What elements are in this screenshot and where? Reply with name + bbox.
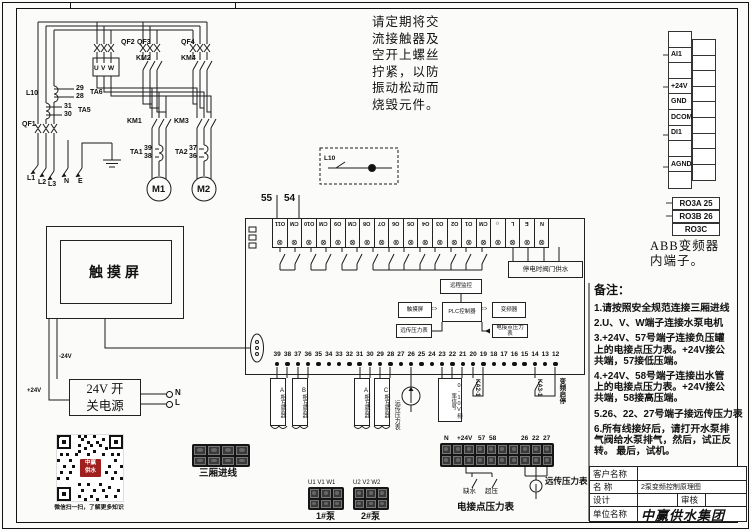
psu-n-terminal xyxy=(166,391,173,398)
terminal-cell: 34 xyxy=(324,351,334,366)
schematic-sheet: { "note": { "text": "请定期将交\n流接触器及\n空开上螺丝… xyxy=(0,0,751,531)
inverter-w: W xyxy=(108,66,114,73)
psu-l-terminal xyxy=(166,401,173,408)
ta2-num37: 37 xyxy=(189,145,197,152)
ta6-num28: 28 xyxy=(76,93,84,100)
relay-ka3-label: KA3-1 xyxy=(536,379,542,396)
screw-icon: ⊗ xyxy=(320,239,327,246)
qf3-label: QF3 xyxy=(137,39,151,46)
terminal-number: 39 xyxy=(274,351,281,358)
motor1-label: M1 xyxy=(152,185,165,195)
terminal-label: O6 xyxy=(392,220,399,226)
pump2-terminal-block xyxy=(353,487,389,510)
terminal-dot-icon xyxy=(492,362,496,366)
terminal-cell: 30 xyxy=(365,351,375,366)
terminal-number: 20 xyxy=(469,351,476,358)
terminal-dot-icon xyxy=(450,362,454,366)
terminal-label: E xyxy=(525,220,529,226)
terminal-dot-icon xyxy=(337,362,341,366)
terminal-pole xyxy=(310,489,319,498)
terminal-dot-icon xyxy=(553,362,557,366)
terminal-pole xyxy=(333,489,342,498)
abb-terminal-label: GND xyxy=(671,98,687,105)
terminal-number: 36 xyxy=(304,351,311,358)
terminal-cell: 18 xyxy=(489,351,499,366)
customer-label: 客户名称 xyxy=(590,467,638,480)
abb-terminal-cell xyxy=(693,40,715,56)
terminal-pole xyxy=(532,456,541,465)
terminal-dot-icon xyxy=(522,362,526,366)
terminal-pole xyxy=(333,500,342,509)
terminal-dot-icon xyxy=(533,362,537,366)
terminal-label: O8 xyxy=(363,220,370,226)
terminal-label: O3 xyxy=(436,220,443,226)
abb-terminal-cell xyxy=(669,63,691,79)
terminal-number: 24 xyxy=(428,351,435,358)
terminal-pole xyxy=(321,500,330,509)
terminal-cell: 21 xyxy=(458,351,468,366)
screw-icon: ⊗ xyxy=(524,239,531,246)
terminal-pole xyxy=(321,489,330,498)
terminal-cell: O9 ⊗ xyxy=(331,219,346,247)
screw-icon: ⊗ xyxy=(538,239,545,246)
inverter-v: V xyxy=(101,66,105,73)
terminal-dot-icon xyxy=(296,362,300,366)
terminal-label: ☼ xyxy=(495,220,500,226)
terminal-pole xyxy=(236,457,248,466)
qf4-label: QF4 xyxy=(181,39,195,46)
flow-box-plc: PLC控制器 xyxy=(442,302,482,322)
abb-terminal-label: +24V xyxy=(671,83,688,90)
terminal-label: O9 xyxy=(334,220,341,226)
terminal-label: L xyxy=(511,220,514,226)
terminal-label: O1 xyxy=(465,220,472,226)
title-block: 客户名称 名 称 2泵变频控制原理图 设计 审核 单位名称 中赢供水集团 xyxy=(589,466,747,522)
terminal-cell: 25 xyxy=(416,351,426,366)
review-label: 审核 xyxy=(678,494,706,506)
terminal-label: CM xyxy=(348,220,357,226)
terminal-dot-icon xyxy=(285,362,289,366)
double-arrow-icon: ⇔ xyxy=(429,303,439,314)
terminal-label: O10 xyxy=(304,220,314,226)
ta1-num38: 38 xyxy=(144,153,152,160)
terminal-pole xyxy=(464,456,473,465)
incoming-terminal-block xyxy=(192,444,250,467)
terminal-number: 22 xyxy=(449,351,456,358)
terminal-pole xyxy=(236,446,248,455)
terminal-cell: 28 xyxy=(385,351,395,366)
terminal-pole xyxy=(378,489,387,498)
terminal-number: 30 xyxy=(366,351,373,358)
abb-terminal-cell: +24V xyxy=(669,79,691,95)
terminal-pole xyxy=(222,446,234,455)
terminal-pole xyxy=(487,456,496,465)
pump2-label: 2#泵 xyxy=(361,512,380,521)
plc-io-terminal-row: 39 38 37 36 35 34 33 32 31 30 29 28 27 2… xyxy=(272,351,561,366)
terminal-cell: 39 xyxy=(272,351,282,366)
qr-center-badge: 中赢 供水 xyxy=(80,459,101,477)
terminal-pole xyxy=(498,456,507,465)
screw-icon: ⊗ xyxy=(393,239,400,246)
terminal-cell: 27 xyxy=(396,351,406,366)
terminal-cell: 15 xyxy=(520,351,530,366)
valve-supply-box: 停电时阀门供水 xyxy=(508,261,583,278)
terminal-pole xyxy=(355,489,364,498)
terminal-label: O7 xyxy=(378,220,385,226)
vfd-startstop-label: 变频启停 xyxy=(557,378,564,414)
ta2-num36: 36 xyxy=(189,153,197,160)
ct-c-phase: C相互感器 xyxy=(374,378,390,426)
terminal-pole xyxy=(509,456,518,465)
abb-terminal-column-right xyxy=(692,39,716,181)
terminal-cell: 38 xyxy=(282,351,292,366)
touchscreen-label: 触摸屏 xyxy=(60,240,172,304)
abb-terminal-cell xyxy=(693,134,715,150)
terminal-cell: 13 xyxy=(540,351,550,366)
terminal-dot-icon xyxy=(419,362,423,366)
abb-caption: ABB变频器 内端子。 xyxy=(650,239,719,269)
terminal-cell: O8 ⊗ xyxy=(360,219,375,247)
remote-gauge-label: 远传压力表 xyxy=(545,477,588,486)
qr-code: 中赢 供水 xyxy=(56,434,124,502)
terminal-number: 37 xyxy=(294,351,301,358)
terminal-cell: L ⊗ xyxy=(506,219,521,247)
terminal-pole xyxy=(487,445,496,454)
terminal-number: 12 xyxy=(552,351,559,358)
terminal-dot-icon xyxy=(440,362,444,366)
terminal-pole xyxy=(442,445,451,454)
design-label: 设计 xyxy=(590,494,638,506)
terminal-cell: O10 ⊗ xyxy=(302,219,317,247)
terminal-number: 17 xyxy=(500,351,507,358)
earth-e: E xyxy=(78,178,83,185)
terminal-dot-icon xyxy=(368,362,372,366)
frequency-signal-box: 0-10V频率信号 xyxy=(438,378,462,422)
phase-l3: L3 xyxy=(48,181,56,188)
qr-finder-icon xyxy=(109,435,123,449)
abb-terminal-cell: GND xyxy=(669,94,691,110)
km4-label: KM4 xyxy=(181,55,196,62)
terminal-number: 27 xyxy=(397,351,404,358)
terminal-cell: 20 xyxy=(468,351,478,366)
terminal-number: 32 xyxy=(346,351,353,358)
flow-box-touchscreen: 触摸屏 xyxy=(398,302,432,318)
abb-terminal-label: AGND xyxy=(671,161,692,168)
terminal-pole xyxy=(509,445,518,454)
remark-item: 3.+24V、57号端子连接负压罐 上的电接点压力表。+24V接公 共端，57接… xyxy=(594,333,749,367)
abb-terminal-cell xyxy=(693,56,715,72)
screw-icon: ⊗ xyxy=(422,239,429,246)
terminal-cell: 29 xyxy=(375,351,385,366)
terminal-cell: 17 xyxy=(499,351,509,366)
screw-icon: ⊗ xyxy=(364,239,371,246)
terminal-number: 29 xyxy=(377,351,384,358)
screw-icon: ⊗ xyxy=(480,239,487,246)
terminal-cell: N ⊗ xyxy=(535,219,550,247)
name-label: 名 称 xyxy=(590,481,638,493)
terminal-dot-icon xyxy=(543,362,547,366)
terminal-number: 33 xyxy=(335,351,342,358)
strip-58-label: 58 xyxy=(489,436,496,443)
terminal-pole xyxy=(378,500,387,509)
gauge-terminal-strip xyxy=(440,443,554,467)
wire-55: 55 xyxy=(261,194,272,204)
terminal-pole xyxy=(476,445,485,454)
abb-terminal-cell xyxy=(693,118,715,134)
abb-terminal-cell xyxy=(693,71,715,87)
terminal-dot-icon xyxy=(409,362,413,366)
terminal-pole xyxy=(366,500,375,509)
terminal-cell: 37 xyxy=(293,351,303,366)
terminal-cell: O1 ⊗ xyxy=(462,219,477,247)
terminal-cell: 32 xyxy=(344,351,354,366)
abb-terminal-cell xyxy=(693,165,715,181)
terminal-number: 14 xyxy=(531,351,538,358)
neutral-n: N xyxy=(64,178,69,185)
terminal-cell: O7 ⊗ xyxy=(375,219,390,247)
pump2-terminals-label: U2 V2 W2 xyxy=(353,480,380,486)
terminal-cell: O3 ⊗ xyxy=(433,219,448,247)
terminal-cell: 14 xyxy=(530,351,540,366)
phase-l2: L2 xyxy=(38,179,46,186)
flow-box-remote-gauge: 远传压力表 xyxy=(396,324,432,338)
terminal-cell: O2 ⊗ xyxy=(448,219,463,247)
terminal-dot-icon xyxy=(481,362,485,366)
screw-icon: ⊗ xyxy=(407,239,414,246)
pump1-terminals-label: U1 V1 W1 xyxy=(308,480,335,486)
lack-water-label: 缺水 xyxy=(463,489,476,496)
terminal-cell: 33 xyxy=(334,351,344,366)
terminal-cell: 31 xyxy=(355,351,365,366)
terminal-pole xyxy=(498,445,507,454)
terminal-cell: CM ⊗ xyxy=(346,219,361,247)
terminal-number: 28 xyxy=(387,351,394,358)
lamp-box-l10: L10 xyxy=(324,156,335,163)
flow-box-remote: 远程监控 xyxy=(440,279,482,294)
terminal-cell: 36 xyxy=(303,351,313,366)
strip-57-label: 57 xyxy=(478,436,485,443)
screw-icon: ⊗ xyxy=(509,239,516,246)
qr-caption: 微信扫一扫，了解更多知识 xyxy=(47,502,131,511)
maintenance-note: 请定期将交 流接触器及 空开上螺丝 拧紧，以防 振动松动而 烧毁元件。 xyxy=(372,14,462,113)
wire-54: 54 xyxy=(284,194,295,204)
terminal-number: 31 xyxy=(356,351,363,358)
km2-label: KM2 xyxy=(136,55,151,62)
abb-terminal-cell xyxy=(669,141,691,157)
strip-22-label: 22 xyxy=(532,436,539,443)
qf1-label: QF1 xyxy=(22,121,36,128)
terminal-dot-icon xyxy=(399,362,403,366)
km1-label: KM1 xyxy=(127,118,142,125)
flow-box-contact-gauge: 电接点压力表 xyxy=(492,324,528,338)
design-value xyxy=(638,494,678,506)
terminal-pole xyxy=(355,500,364,509)
terminal-dot-icon xyxy=(357,362,361,366)
terminal-pole xyxy=(476,456,485,465)
terminal-dot-icon xyxy=(430,362,434,366)
terminal-cell: O6 ⊗ xyxy=(389,219,404,247)
terminal-pole xyxy=(310,500,319,509)
terminal-label: O11 xyxy=(275,220,285,226)
remarks-title: 备注： xyxy=(594,281,749,298)
terminal-label: O4 xyxy=(422,220,429,226)
plus24v-label: +24V xyxy=(27,388,41,394)
terminal-cell: ☼ ⊗ xyxy=(491,219,506,247)
inverter-u: U xyxy=(94,66,99,73)
screw-icon: ⊗ xyxy=(291,239,298,246)
terminal-number: 38 xyxy=(284,351,291,358)
terminal-number: 26 xyxy=(408,351,415,358)
ct-b-phase: B相互感器 xyxy=(292,378,308,426)
psu-n-label: N xyxy=(175,389,181,397)
screw-icon: ⊗ xyxy=(306,239,313,246)
ta2-label: TA2 xyxy=(175,149,188,156)
terminal-pole xyxy=(520,456,529,465)
abb-relay-ro3b: RO3B 26 xyxy=(672,210,720,223)
ta1-label: TA1 xyxy=(130,149,143,156)
psu-box: 24V 开 关电源 xyxy=(69,379,141,416)
ct-a2-phase: A相互感器 xyxy=(354,378,370,426)
terminal-pole xyxy=(453,456,462,465)
screw-icon: ⊗ xyxy=(335,239,342,246)
terminal-dot-icon xyxy=(306,362,310,366)
terminal-pole xyxy=(194,446,206,455)
terminal-pole xyxy=(442,456,451,465)
ta6-num29: 29 xyxy=(76,85,84,92)
km3-label: KM3 xyxy=(174,118,189,125)
screw-icon: ⊗ xyxy=(495,239,502,246)
phase-l1: L1 xyxy=(27,175,35,182)
over-pressure-label: 超压 xyxy=(485,489,498,496)
remark-item: 1.请按照安全规范连接三厢进线 xyxy=(594,303,749,314)
terminal-pole xyxy=(543,445,552,454)
lamp-test-box xyxy=(320,148,398,184)
terminal-dot-icon xyxy=(327,362,331,366)
screw-icon: ⊗ xyxy=(451,239,458,246)
screw-icon: ⊗ xyxy=(378,239,385,246)
ta5-num30: 30 xyxy=(64,111,72,118)
terminal-cell: 23 xyxy=(437,351,447,366)
terminal-dot-icon xyxy=(461,362,465,366)
contact-gauge-label: 电接点压力表 xyxy=(457,503,514,513)
terminal-number: 21 xyxy=(459,351,466,358)
qf2-label: QF2 xyxy=(121,39,135,46)
terminal-cell: CM ⊗ xyxy=(317,219,332,247)
pump1-terminal-block xyxy=(308,487,344,510)
remark-item: 2.U、V、W端子连接水泵电机 xyxy=(594,318,749,329)
unit-label: 单位名称 xyxy=(590,507,638,521)
terminal-dot-icon xyxy=(502,362,506,366)
terminal-cell: CM ⊗ xyxy=(477,219,492,247)
abb-relay-ro3c: RO3C xyxy=(672,223,720,236)
relay-ka2-label: KA2-1 xyxy=(474,379,480,396)
terminal-dot-icon xyxy=(275,362,279,366)
customer-value xyxy=(638,467,746,480)
terminal-dot-icon xyxy=(316,362,320,366)
strip-26-label: 26 xyxy=(521,436,528,443)
remarks-section: 备注： 1.请按照安全规范连接三厢进线2.U、V、W端子连接水泵电机3.+24V… xyxy=(594,281,749,461)
abb-terminal-column-left: AI1+24VGNDDCOMDI1AGND xyxy=(668,31,692,189)
terminal-label: O2 xyxy=(451,220,458,226)
terminal-dot-icon xyxy=(378,362,382,366)
l10-label: L10 xyxy=(26,90,38,97)
terminal-number: 25 xyxy=(418,351,425,358)
terminal-dot-icon xyxy=(347,362,351,366)
terminal-cell: 19 xyxy=(478,351,488,366)
terminal-cell: O11 ⊗ xyxy=(273,219,288,247)
terminal-number: 34 xyxy=(325,351,332,358)
terminal-cell: 22 xyxy=(447,351,457,366)
terminal-cell: O5 ⊗ xyxy=(404,219,419,247)
terminal-dot-icon xyxy=(512,362,516,366)
terminal-number: 16 xyxy=(511,351,518,358)
terminal-dot-icon xyxy=(471,362,475,366)
review-value xyxy=(706,494,746,506)
abb-terminal-cell: DI1 xyxy=(669,126,691,142)
terminal-dot-icon xyxy=(388,362,392,366)
strip-24v-label: +24V xyxy=(457,436,472,443)
abb-terminal-label: AI1 xyxy=(671,51,682,58)
terminal-pole xyxy=(208,457,220,466)
abb-terminal-cell: AI1 xyxy=(669,48,691,64)
terminal-pole xyxy=(208,446,220,455)
terminal-pole xyxy=(543,456,552,465)
terminal-cell: 16 xyxy=(509,351,519,366)
terminal-cell: O4 ⊗ xyxy=(418,219,433,247)
terminal-cell: 12 xyxy=(550,351,560,366)
abb-terminal-label: DCOM xyxy=(671,114,692,121)
terminal-cell: 35 xyxy=(313,351,323,366)
terminal-label: CM xyxy=(319,220,328,226)
ta5-label: TA5 xyxy=(78,107,91,114)
terminal-pole xyxy=(464,445,473,454)
strip-n-label: N xyxy=(444,436,449,443)
abb-terminal-cell xyxy=(669,172,691,188)
qr-finder-icon xyxy=(57,435,71,449)
terminal-cell: 26 xyxy=(406,351,416,366)
double-arrow-icon: ⇔ xyxy=(479,303,489,314)
terminal-label: O5 xyxy=(407,220,414,226)
strip-27-label: 27 xyxy=(543,436,550,443)
abb-terminal-cell xyxy=(693,102,715,118)
abb-terminal-cell xyxy=(693,149,715,165)
abb-relay-ro3a: RO3A 25 xyxy=(672,197,720,210)
terminal-pole xyxy=(520,445,529,454)
abb-terminal-cell xyxy=(693,87,715,103)
minus24v-label: -24V xyxy=(59,354,72,360)
terminal-label: CM xyxy=(290,220,299,226)
name-value: 2泵变频控制原理图 xyxy=(638,481,746,493)
abb-terminal-label: DI1 xyxy=(671,129,682,136)
terminal-label: CM xyxy=(479,220,488,226)
terminal-pole xyxy=(453,445,462,454)
remote-gauge-label-plc: 远传压力表 xyxy=(393,400,399,442)
abb-terminal-cell: AGND xyxy=(669,157,691,173)
screw-icon: ⊗ xyxy=(436,239,443,246)
remark-item: 4.+24V、58号端子连接出水管 上的电接点压力表。+24V接公 共端，58接… xyxy=(594,371,749,405)
terminal-number: 13 xyxy=(542,351,549,358)
remark-item: 5.26、22、27号端子接远传压力表 xyxy=(594,409,749,420)
terminal-cell: 24 xyxy=(427,351,437,366)
terminal-pole xyxy=(194,457,206,466)
ta6-label: TA6 xyxy=(90,89,103,96)
terminal-pole xyxy=(366,489,375,498)
ct-a-phase: A相互感器 xyxy=(270,378,286,426)
terminal-pole xyxy=(222,457,234,466)
terminal-number: 18 xyxy=(490,351,497,358)
terminal-number: 23 xyxy=(439,351,446,358)
ta5-num31: 31 xyxy=(64,103,72,110)
